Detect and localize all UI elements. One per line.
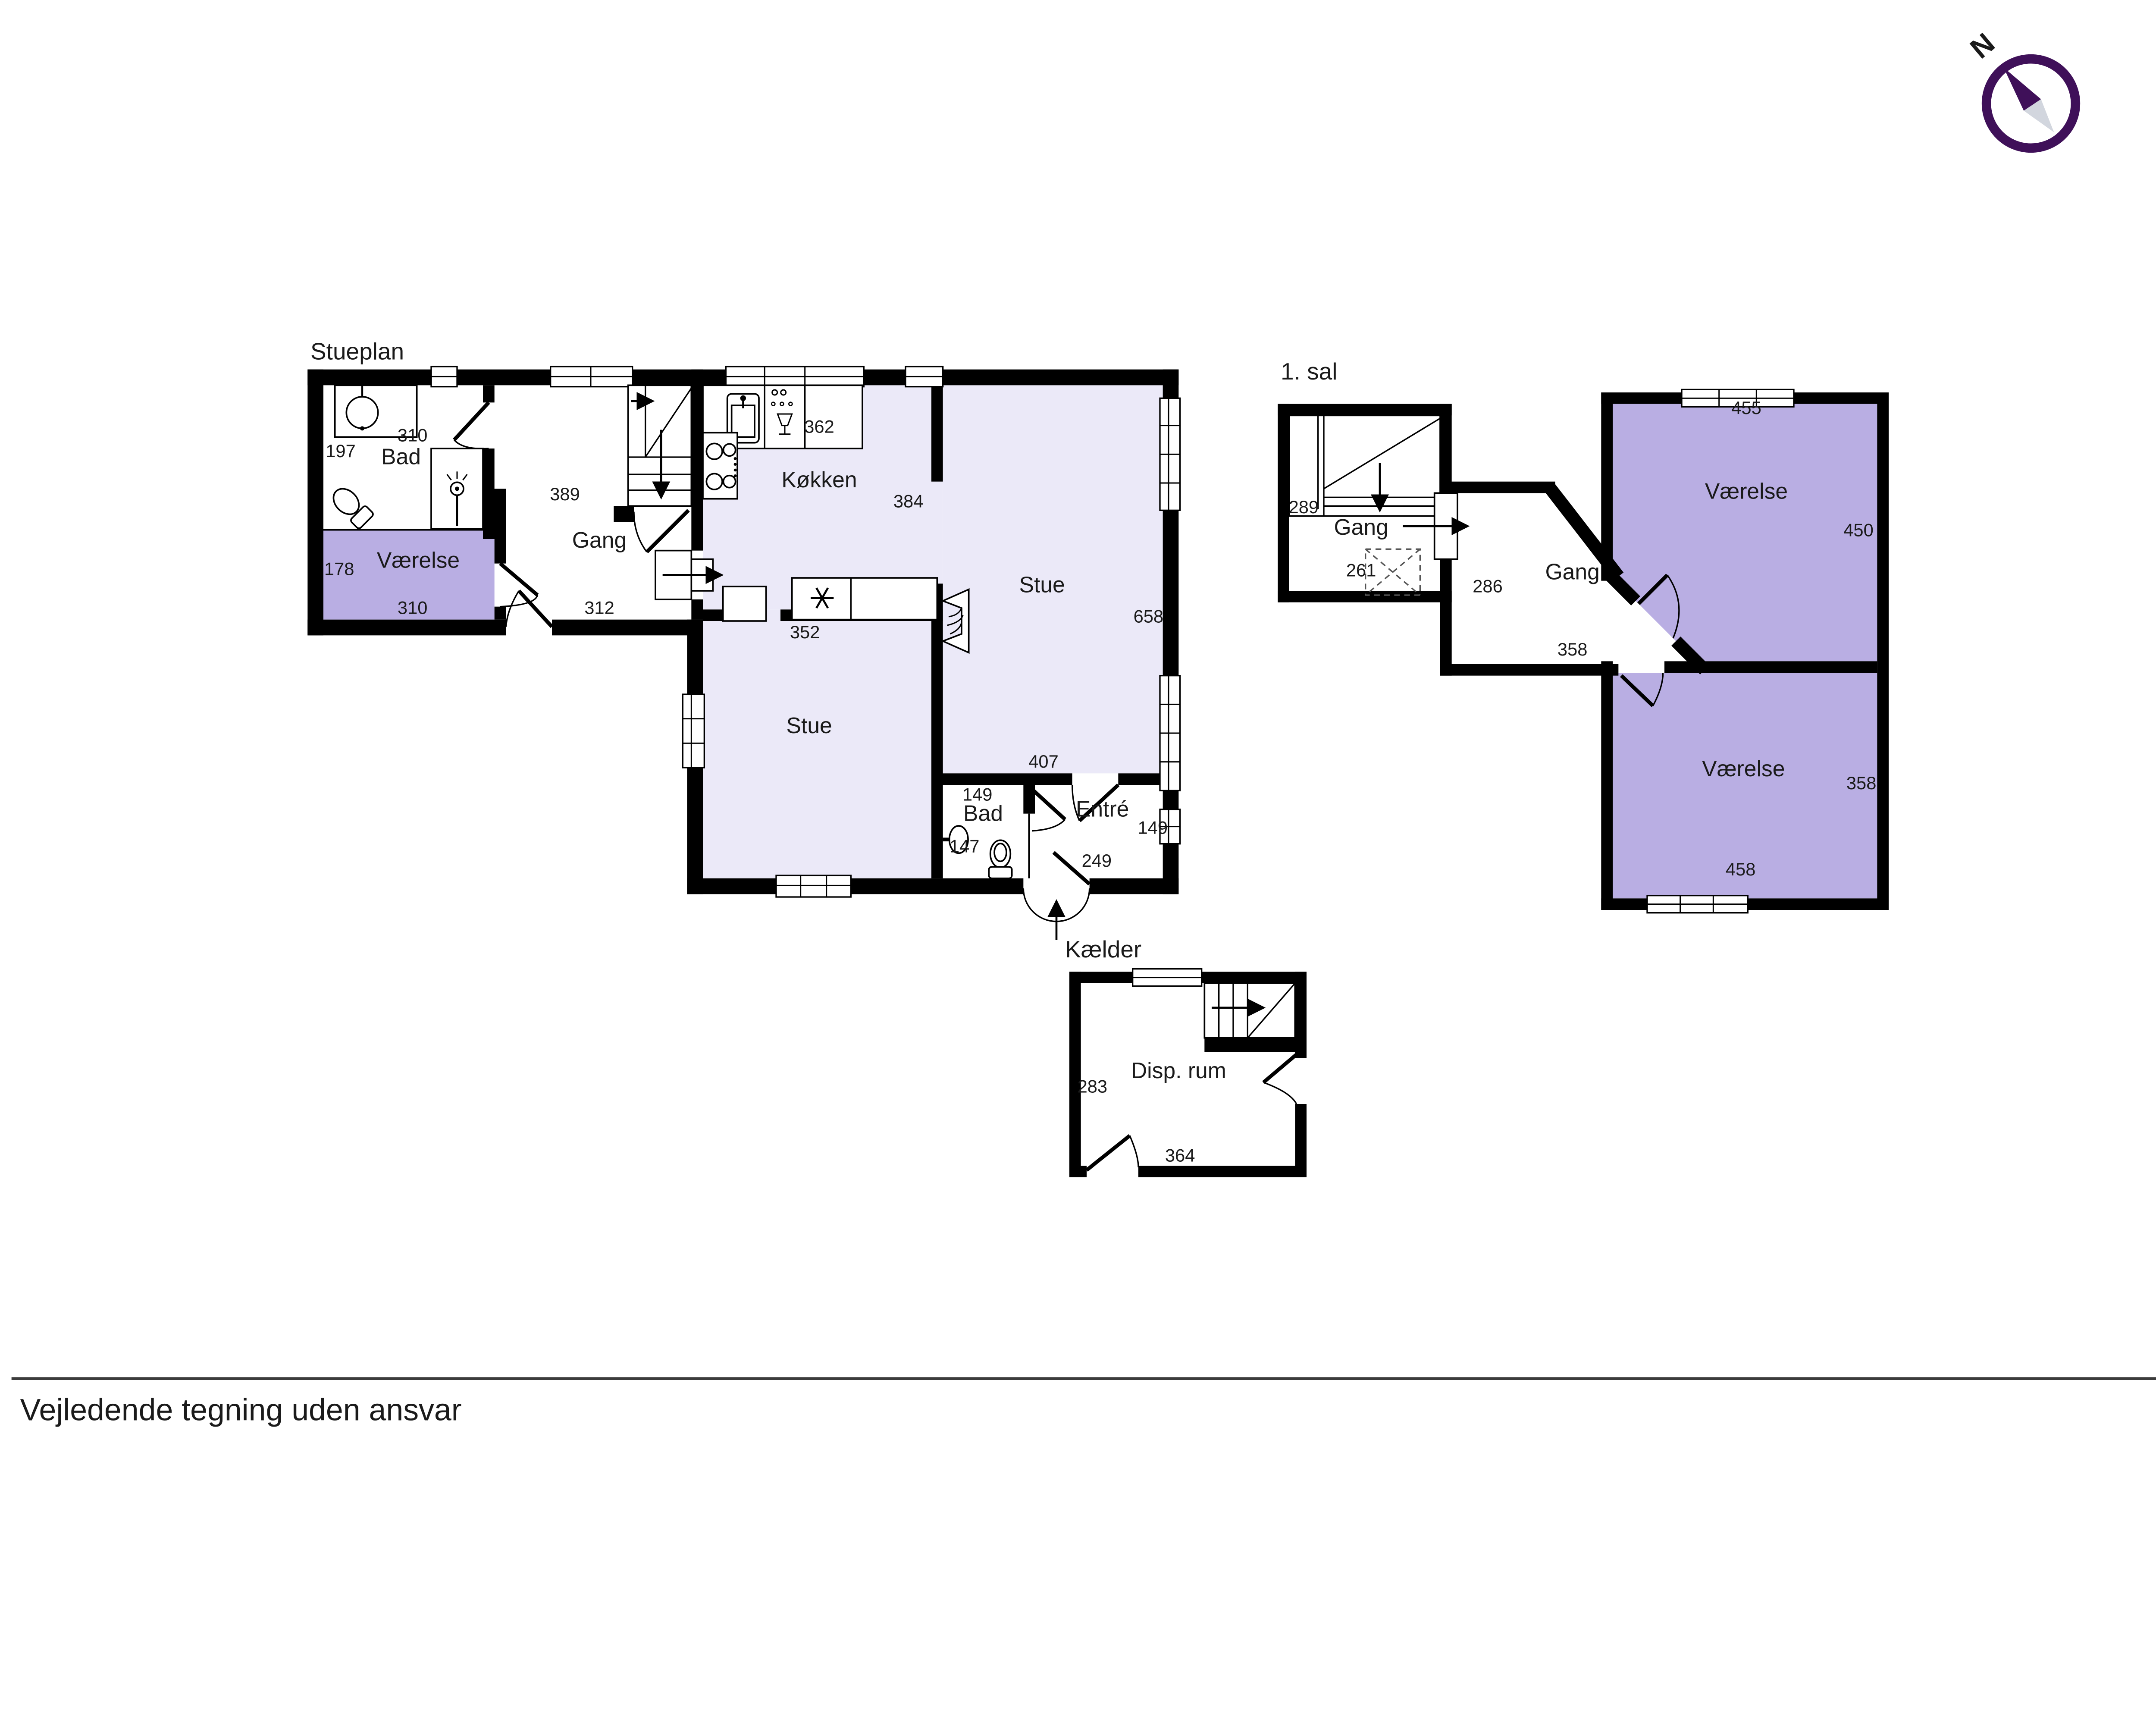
door-right	[1263, 1051, 1301, 1104]
disp-rum-left-measurement: 283	[1078, 1076, 1108, 1096]
foerste-sal-title: 1. sal	[1281, 358, 1337, 385]
toilet-icon	[329, 484, 374, 530]
kaelder-stairs	[1204, 983, 1295, 1038]
vaerelse2-right-measurement: 358	[1846, 773, 1877, 793]
window-icon	[1160, 676, 1180, 791]
vaerelse1-right-measurement: 450	[1843, 520, 1874, 540]
gang1-left-measurement: 289	[1289, 497, 1319, 517]
door-gang-back	[506, 591, 552, 627]
bad2-room-label: Bad	[963, 800, 1003, 825]
gang2-left-measurement: 286	[1473, 576, 1503, 596]
koekken-bottom-measurement: 352	[790, 622, 820, 642]
gang-bottom-measurement: 312	[584, 597, 614, 618]
stueplan-stairs	[628, 385, 692, 506]
gang2-bottom-measurement: 358	[1557, 639, 1588, 659]
stueplan-title: Stueplan	[310, 338, 404, 364]
gang-top-measurement: 389	[550, 484, 580, 504]
gang1-bottom-measurement: 261	[1346, 560, 1376, 580]
window-icon	[726, 367, 864, 387]
bad2-left-measurement: 147	[950, 836, 980, 856]
stue-room-label: Stue	[1019, 572, 1065, 597]
gang2-room-label: Gang	[1545, 559, 1599, 584]
vaerelse-room-label: Værelse	[377, 548, 460, 573]
vaerelse2-bottom-measurement: 458	[1726, 859, 1756, 879]
compass-north-label: N	[1965, 27, 2001, 65]
door-vaerelse	[500, 564, 538, 607]
entrance-door	[1023, 853, 1089, 940]
floor-kaelder: Kælder	[1065, 936, 1307, 1177]
window-icon	[776, 875, 851, 897]
door-bottom	[1087, 1135, 1138, 1170]
disclaimer-text: Vejledende tegning uden ansvar	[20, 1393, 462, 1427]
disp-rum-room-label: Disp. rum	[1131, 1058, 1226, 1083]
floor-plan-canvas: Stueplan	[0, 0, 2156, 1437]
vaerelse-bottom-measurement: 310	[398, 597, 428, 618]
window-icon	[1647, 896, 1748, 913]
koekken-right-measurement: 384	[893, 491, 924, 511]
floor-stueplan: Stueplan	[307, 338, 1180, 940]
gang1-room-label: Gang	[1334, 514, 1388, 539]
floor-plan-page: Stueplan	[0, 0, 2156, 1725]
vaerelse1-room	[1613, 404, 1877, 662]
door-bad-entre	[1032, 789, 1065, 831]
vaerelse1-room-label: Værelse	[1705, 479, 1788, 504]
compass: N	[1965, 27, 2076, 148]
bad2-toilet-icon	[989, 840, 1012, 878]
gang-room-label: Gang	[572, 527, 627, 552]
kaelder-window	[1133, 969, 1202, 986]
window-icon	[1160, 398, 1180, 510]
door-bad	[454, 402, 489, 448]
bad-room-label: Bad	[381, 444, 421, 469]
footer: Vejledende tegning uden ansvar	[12, 1379, 2156, 1427]
window-icon	[906, 367, 943, 387]
shower-icon	[431, 448, 483, 529]
kaelder-title: Kælder	[1065, 936, 1141, 963]
koekken-room-label: Køkken	[781, 467, 857, 492]
window-icon	[551, 367, 633, 387]
bad-top-measurement: 310	[398, 425, 428, 445]
disp-rum-bottom-measurement: 364	[1165, 1145, 1195, 1165]
stove-icon	[703, 433, 737, 499]
vaerelse2-room-label: Værelse	[1702, 756, 1785, 781]
stue-bottom-measurement: 407	[1028, 751, 1059, 772]
koekken-stue-passage	[931, 482, 943, 584]
kaelder-labels: Disp. rum 283 364	[1078, 1058, 1226, 1165]
floor-foerste-sal: 1. sal	[1278, 358, 1889, 913]
vaerelse1-top-measurement: 455	[1731, 398, 1761, 418]
stue-right-measurement: 658	[1134, 606, 1164, 626]
window-icon	[431, 367, 457, 387]
entre-bottom-measurement: 249	[1082, 850, 1112, 871]
bad-left-measurement: 197	[326, 441, 356, 461]
entre-right-measurement: 149	[1138, 817, 1168, 837]
vaerelse-left-measurement: 178	[324, 558, 354, 579]
window-icon	[683, 694, 704, 768]
stue2-room-label: Stue	[787, 713, 832, 738]
koekken-top-measurement: 362	[804, 416, 834, 436]
stue2-room	[703, 621, 931, 878]
door-under-stairs	[634, 510, 689, 552]
entre-room-label: Entré	[1076, 796, 1129, 821]
